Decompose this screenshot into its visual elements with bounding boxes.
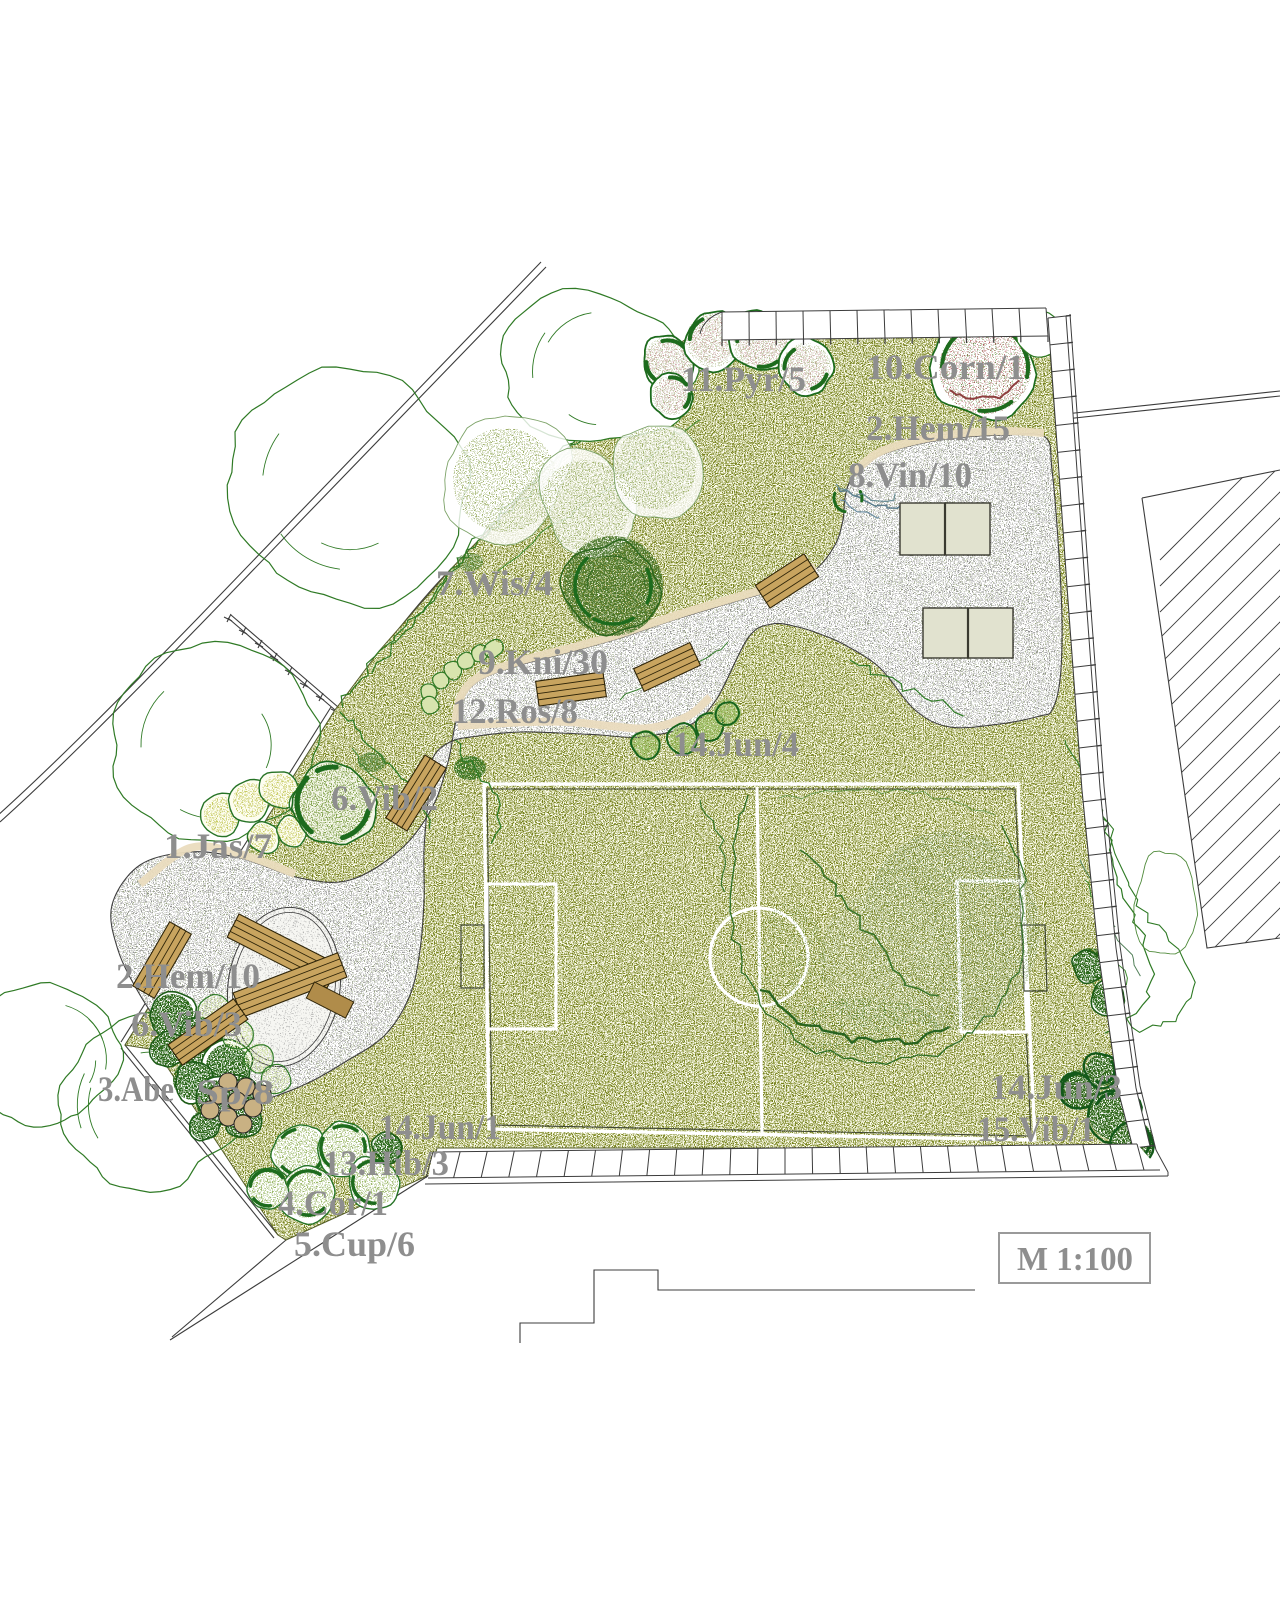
- svg-text:7.Wis/4: 7.Wis/4: [436, 563, 553, 603]
- svg-text:14.Jun/1: 14.Jun/1: [379, 1107, 501, 1147]
- svg-text:14.Jun/3: 14.Jun/3: [990, 1067, 1122, 1107]
- svg-text:8.Vin/10: 8.Vin/10: [848, 455, 972, 495]
- svg-text:14.Jun/4: 14.Jun/4: [673, 724, 799, 764]
- svg-text:11.Pyr/5: 11.Pyr/5: [681, 359, 806, 399]
- svg-text:15.Vib/1: 15.Vib/1: [977, 1109, 1095, 1149]
- svg-text:6.Vib/3: 6.Vib/3: [131, 1004, 242, 1044]
- svg-text:13.Hib/3: 13.Hib/3: [323, 1143, 449, 1183]
- svg-text:6.Vib/2: 6.Vib/2: [331, 778, 438, 818]
- svg-text:9.Kni/30: 9.Kni/30: [478, 642, 608, 682]
- svg-text:M 1:100: M 1:100: [1017, 1241, 1133, 1278]
- svg-text:Sp/8: Sp/8: [196, 1072, 274, 1112]
- svg-text:5.Cup/6: 5.Cup/6: [294, 1224, 415, 1264]
- svg-text:4.Cor/1: 4.Cor/1: [278, 1183, 388, 1223]
- svg-text:2.Hem/15: 2.Hem/15: [866, 408, 1010, 448]
- svg-text:12.Ros/8: 12.Ros/8: [452, 691, 578, 731]
- svg-text:3.Abe: 3.Abe: [98, 1069, 174, 1109]
- svg-text:2.Hem/10: 2.Hem/10: [116, 956, 260, 996]
- svg-text:1.Jas/7: 1.Jas/7: [164, 826, 272, 866]
- svg-text:10.Corn/1: 10.Corn/1: [866, 347, 1025, 387]
